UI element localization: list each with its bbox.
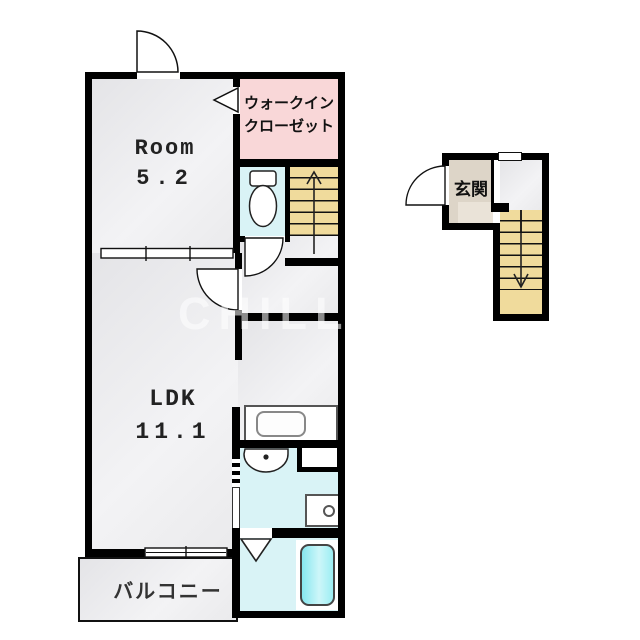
pan-drain-icon [324, 506, 334, 516]
toilet-bowl-icon [250, 186, 277, 227]
entrance-label: 玄関 [448, 175, 494, 200]
room-name-label: Room [110, 136, 220, 161]
ldk-name-label: LDK [118, 386, 228, 412]
closet-opening-icon [214, 88, 238, 112]
room-sliding-door [101, 249, 233, 259]
floor-plan: Room 5.2 LDK 11.1 ウォークイン クローゼット 玄関 バルコニー… [0, 0, 640, 640]
toilet-tank-icon [250, 171, 276, 186]
closet-label: ウォークイン クローゼット [240, 92, 338, 138]
room-door-arc [137, 31, 178, 72]
washbasin-icon [244, 449, 288, 472]
room-area-label: 5.2 [110, 166, 220, 191]
ldk-area-label: 11.1 [118, 419, 228, 445]
entrance-door-arc [406, 166, 445, 205]
washbasin-faucet-icon [263, 454, 268, 459]
balcony-label: バルコニー [98, 575, 238, 604]
toilet-door-arc [245, 238, 283, 276]
closet-label-line2: クローゼット [240, 115, 338, 138]
bathroom-folding-door [241, 539, 271, 561]
closet-label-line1: ウォークイン [240, 92, 338, 115]
ldk-door-arc [197, 269, 238, 310]
